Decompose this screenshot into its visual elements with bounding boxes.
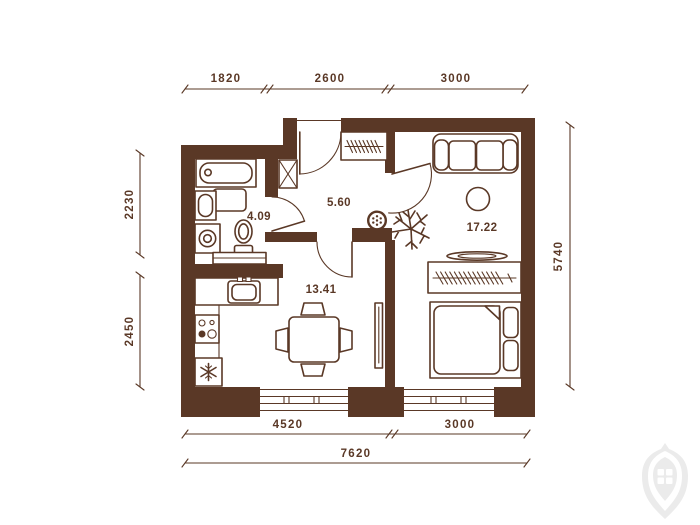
dim-left-2: 2450 [124,316,136,347]
plant-icon [392,210,429,249]
fridge-icon [195,358,222,386]
wardrobe-hangers-icon [428,262,521,293]
dim-top-2: 2600 [315,73,346,85]
entrance-door-icon [297,121,341,175]
coat-closet-hangers-icon [341,132,387,160]
kitchen-door-icon [317,242,352,277]
dim-top-3: 3000 [441,73,472,85]
dim-left-1: 2230 [124,189,136,220]
dim-right-1: 5740 [553,241,565,272]
bathroom-cabinet-icon [213,189,246,211]
dimension-top: 1820 2600 3000 [182,73,528,93]
dimension-left: 2230 2450 [124,150,144,390]
dim-overall: 7620 [341,448,372,460]
dim-top-1: 1820 [211,73,242,85]
bathtub-icon [196,159,256,187]
stove-icon [195,315,219,343]
washbasin-icon [195,191,216,220]
dimension-bottom: 4520 3000 7620 [182,419,530,467]
dimension-right: 5740 [553,122,574,390]
dining-table-chairs-icon [276,303,352,376]
round-table-icon [467,188,490,211]
washing-machine-icon [195,224,220,253]
dim-bottom-1: 4520 [273,419,304,431]
ventilation-shaft-icon [279,160,297,188]
double-bed-icon [430,302,521,378]
kitchen-window [260,390,348,411]
floor-plan-page: 4.09 5.60 13.41 17.22 1820 2600 3000 223… [0,0,700,525]
toilet-icon [235,220,253,257]
bathroom-door-icon [272,197,305,231]
room-area-label: 17.22 [467,222,498,234]
sofa-icon [433,134,518,173]
dim-bottom-2: 3000 [445,419,476,431]
developer-logo-watermark [642,443,688,519]
tv-icon [375,303,383,368]
hallway-area-label: 5.60 [327,197,351,209]
floor-plan: 4.09 5.60 13.41 17.22 1820 2600 3000 223… [0,0,700,525]
bathroom-area-label: 4.09 [247,211,271,223]
kitchen-sink-icon [195,277,278,305]
vanity-counter-icon [213,253,266,265]
wall-vent-icon [368,212,386,230]
room-door-icon [389,164,432,214]
shelf-tray-icon [447,252,507,260]
bedroom-window [404,390,494,411]
kitchen-area-label: 13.41 [306,284,337,296]
